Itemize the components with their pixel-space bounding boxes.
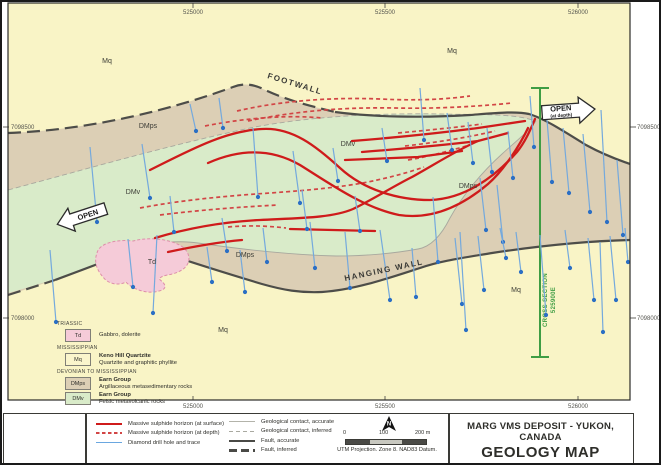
drill-hole-toe-dot <box>348 286 352 290</box>
mq-desc: Quartzite and graphitic phyllite <box>99 360 177 367</box>
drill-hole-toe-dot <box>131 285 135 289</box>
drill-hole-toe-dot <box>484 228 488 232</box>
drill-hole-toe-dot <box>544 313 548 317</box>
drill-hole-toe-dot <box>298 201 302 205</box>
legend-row: Geological contact, inferred <box>229 427 334 437</box>
drill-hole-toe-dot <box>313 266 317 270</box>
dmv-desc: Felsic metavolcanic rocks <box>99 399 165 406</box>
easting-label-bottom: 526000 <box>568 404 589 410</box>
drill-hole-toe-dot <box>519 270 523 274</box>
drill-hole-toe-dot <box>471 161 475 165</box>
northing-label-left: 7098500 <box>11 125 35 131</box>
drill-hole-toe-dot <box>601 330 605 334</box>
map-title: MARG VMS DEPOSIT - YUKON, CANADA <box>448 421 633 443</box>
sulphide-surface-symbol <box>96 423 122 426</box>
legend-unit-dmv: DMv Earn Group Felsic metavolcanic rocks <box>65 392 252 405</box>
unit-label-td: Td <box>148 259 156 266</box>
drill-hole-toe-dot <box>460 302 464 306</box>
drill-hole-toe-dot <box>504 256 508 260</box>
unit-label-dmv: DMv <box>126 189 141 196</box>
legend-label: Massive sulphide horizon (at surface) <box>128 421 224 427</box>
contact-accurate-symbol <box>229 421 255 422</box>
drill-hole-toe-dot <box>388 298 392 302</box>
legend-row: Fault, accurate <box>229 436 334 446</box>
title-block: MARG VMS DEPOSIT - YUKON, CANADA GEOLOGY… <box>448 414 633 463</box>
legend-label: Geological contact, accurate <box>261 419 334 425</box>
drill-hole-toe-dot <box>265 260 269 264</box>
drill-hole-toe-dot <box>151 311 155 315</box>
easting-label-top: 525000 <box>183 10 204 16</box>
drill-hole-symbol <box>96 442 122 443</box>
drill-hole-toe-dot <box>305 227 309 231</box>
drill-hole-toe-dot <box>243 290 247 294</box>
legend-row: Massive sulphide horizon (at surface) <box>96 419 224 429</box>
drill-hole-toe-dot <box>550 180 554 184</box>
legend-label: Fault, accurate <box>261 438 299 444</box>
map-subtitle: GEOLOGY MAP <box>448 444 633 461</box>
legend-unit-mq: Mq Keno Hill Quartzite Quartzite and gra… <box>65 353 252 366</box>
drill-hole-toe-dot <box>490 170 494 174</box>
unit-label-dmv: DMv <box>341 141 356 148</box>
drill-hole-toe-dot <box>210 280 214 284</box>
dmps-desc: Argillaceous metasedimentary rocks <box>99 384 192 391</box>
drill-hole-toe-dot <box>614 298 618 302</box>
svg-text:N: N <box>387 422 391 428</box>
contact-inferred-symbol <box>229 431 255 432</box>
drill-hole-toe-dot <box>225 249 229 253</box>
mq-swatch: Mq <box>65 353 91 366</box>
legend-label: Fault, inferred <box>261 447 297 453</box>
legend-row: Geological contact, accurate <box>229 417 334 427</box>
drill-hole-toe-dot <box>621 233 625 237</box>
drill-hole-toe-dot <box>532 145 536 149</box>
northing-label-right: 7098000 <box>637 316 661 322</box>
drill-hole-toe-dot <box>588 210 592 214</box>
drill-hole-toe-dot <box>336 179 340 183</box>
dmps-swatch: DMps <box>65 377 91 390</box>
drill-hole-toe-dot <box>567 191 571 195</box>
scale-tick-0: 0 <box>343 430 346 436</box>
fault-accurate-symbol <box>229 440 255 443</box>
drill-hole-toe-dot <box>422 138 426 142</box>
drill-hole-toe-dot <box>358 229 362 233</box>
era-label-devonian-mississippian: DEVONIAN TO MISSISSIPPIAN <box>57 369 252 375</box>
drill-hole-toe-dot <box>148 196 152 200</box>
legend-label: Massive sulphide horizon (at depth) <box>128 430 220 436</box>
unit-label-mq: Mq <box>511 287 521 294</box>
legend-label: Geological contact, inferred <box>261 428 332 434</box>
legend-label: Diamond drill hole and trace <box>128 440 200 446</box>
drill-hole-toe-dot <box>450 148 454 152</box>
drill-hole-toe-dot <box>172 230 176 234</box>
legend-row: Massive sulphide horizon (at depth) <box>96 429 224 439</box>
stratigraphy-legend: TRIASSIC Td Gabbro, dolerite MISSISSIPPI… <box>57 318 252 407</box>
strip-divider-1 <box>85 414 87 463</box>
projection-note: UTM Projection. Zone 8. NAD83 Datum. <box>317 447 457 453</box>
td-swatch: Td <box>65 329 91 342</box>
easting-label-top: 525500 <box>375 10 396 16</box>
scale-bar <box>345 439 427 445</box>
unit-label-dmps: DMps <box>459 183 478 190</box>
td-desc: Gabbro, dolerite <box>99 332 141 339</box>
open-east-label: OPEN <box>550 103 572 113</box>
drill-hole-toe-dot <box>464 328 468 332</box>
unit-label-dmps: DMps <box>236 252 255 259</box>
scale-cluster: N 0 100 200 m UTM Projection. Zone 8. NA… <box>331 414 443 463</box>
cross-section-easting-label: 525900E <box>551 287 557 313</box>
sulphide-depth-symbol <box>96 432 122 434</box>
easting-label-bottom: 525500 <box>375 404 396 410</box>
geology-map-page: CROSS-SECTION525900EMqMqMqMqDMpsDMpsDMps… <box>0 0 661 465</box>
drill-hole-toe-dot <box>221 126 225 130</box>
dmv-swatch: DMv <box>65 392 91 405</box>
drill-hole-toe-dot <box>511 176 515 180</box>
legend-unit-dmps: DMps Earn Group Argillaceous metasedimen… <box>65 377 252 390</box>
unit-label-mq: Mq <box>102 58 112 65</box>
drill-hole-toe-dot <box>414 295 418 299</box>
drill-hole-toe-dot <box>436 260 440 264</box>
fault-inferred-symbol <box>229 449 255 452</box>
drill-hole-toe-dot <box>385 159 389 163</box>
map-footer-strip: Massive sulphide horizon (at surface) Ma… <box>3 413 634 464</box>
drill-hole-toe-dot <box>95 220 99 224</box>
drill-hole-toe-dot <box>568 266 572 270</box>
symbol-legend-left: Massive sulphide horizon (at surface) Ma… <box>96 419 224 448</box>
era-label-mississippian: MISSISSIPPIAN <box>57 345 252 351</box>
drill-hole-toe-dot <box>482 288 486 292</box>
unit-label-dmps: DMps <box>139 123 158 130</box>
scale-tick-200: 200 m <box>415 430 430 436</box>
era-label-triassic: TRIASSIC <box>57 321 252 327</box>
drill-hole-toe-dot <box>256 195 260 199</box>
drill-hole-toe-dot <box>605 220 609 224</box>
unit-label-mq: Mq <box>447 48 457 55</box>
scale-tick-100: 100 <box>379 430 388 436</box>
drill-hole-toe-dot <box>592 298 596 302</box>
legend-row: Diamond drill hole and trace <box>96 438 224 448</box>
legend-unit-td: Td Gabbro, dolerite <box>65 329 252 342</box>
drill-hole-toe-dot <box>194 129 198 133</box>
northing-label-right: 7098500 <box>637 125 661 131</box>
easting-label-top: 526000 <box>568 10 589 16</box>
northing-label-left: 7098000 <box>11 316 35 322</box>
